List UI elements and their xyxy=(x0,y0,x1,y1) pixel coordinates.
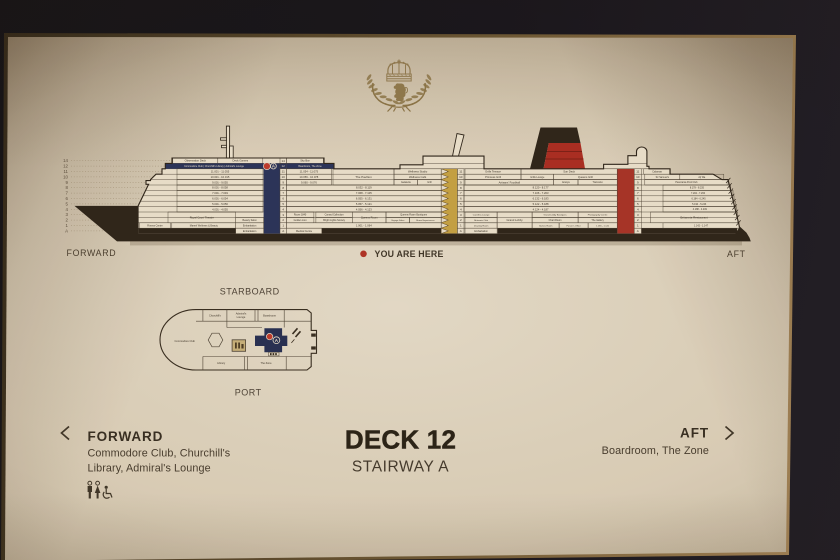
svg-text:Beauty Salon: Beauty Salon xyxy=(242,219,257,222)
svg-text:7.068 - 7.105: 7.068 - 7.105 xyxy=(356,191,372,195)
svg-text:11: 11 xyxy=(63,169,68,174)
svg-text:4.056 - 4.123: 4.056 - 4.123 xyxy=(356,207,372,211)
svg-text:3: 3 xyxy=(66,212,69,217)
svg-text:12: 12 xyxy=(63,164,68,169)
svg-text:A: A xyxy=(65,228,68,233)
svg-text:Sun Deck: Sun Deck xyxy=(563,170,575,174)
svg-text:Embarkation: Embarkation xyxy=(243,224,257,227)
svg-text:Wellness Café: Wellness Café xyxy=(409,175,427,179)
svg-text:6.184 - 6.245: 6.184 - 6.245 xyxy=(691,197,706,200)
svg-text:A: A xyxy=(282,229,284,233)
svg-text:5: 5 xyxy=(66,201,69,206)
svg-text:10: 10 xyxy=(282,175,286,179)
svg-text:11: 11 xyxy=(636,170,639,174)
svg-text:Aji Wa: Aji Wa xyxy=(698,176,705,179)
svg-text:10: 10 xyxy=(636,175,640,179)
svg-text:4.188 - 4.249: 4.188 - 4.249 xyxy=(693,208,708,211)
svg-text:Sir Samuel's: Sir Samuel's xyxy=(656,176,670,179)
svg-text:Princess Grill: Princess Grill xyxy=(485,175,501,179)
svg-text:7.106 - 7.203: 7.106 - 7.203 xyxy=(533,191,549,195)
svg-text:Boardroom, The Zone: Boardroom, The Zone xyxy=(298,165,322,168)
svg-text:7.202 - 7.260: 7.202 - 7.260 xyxy=(691,192,706,195)
svg-text:Grill: Grill xyxy=(427,181,432,184)
svg-text:4: 4 xyxy=(66,207,69,212)
svg-text:Room 1840: Room 1840 xyxy=(294,214,307,217)
svg-text:AFT: AFT xyxy=(727,249,746,259)
svg-text:Lounge: Lounge xyxy=(237,315,246,319)
svg-text:8.120 - 8.177: 8.120 - 8.177 xyxy=(533,186,549,190)
svg-text:12: 12 xyxy=(282,164,286,168)
svg-text:14: 14 xyxy=(63,158,68,163)
svg-text:5.122 - 5.188: 5.122 - 5.188 xyxy=(533,202,549,206)
svg-text:Fitness Centre: Fitness Centre xyxy=(147,224,163,227)
svg-text:Purser's Office: Purser's Office xyxy=(566,224,581,227)
svg-text:Boardroom, The Zone: Boardroom, The Zone xyxy=(602,445,709,457)
svg-text:4.124 - 4.187: 4.124 - 4.187 xyxy=(533,207,549,211)
svg-text:Gelateria: Gelateria xyxy=(401,181,411,184)
svg-text:Deck Games: Deck Games xyxy=(233,159,249,163)
svg-text:11: 11 xyxy=(459,170,462,174)
svg-text:8: 8 xyxy=(66,185,69,190)
svg-text:Shore Experiences: Shore Experiences xyxy=(416,219,435,222)
svg-text:5.190 - 5.243: 5.190 - 5.243 xyxy=(692,203,707,206)
svg-text:9.001 - 9.055: 9.001 - 9.055 xyxy=(212,180,228,184)
svg-text:8.032 - 8.119: 8.032 - 8.119 xyxy=(356,186,372,190)
svg-text:Grills Terrace: Grills Terrace xyxy=(485,170,501,174)
svg-text:Medical Centre: Medical Centre xyxy=(296,230,313,233)
svg-text:Sky Bar: Sky Bar xyxy=(300,159,310,163)
svg-text:7.001 - 7.049: 7.001 - 7.049 xyxy=(212,191,228,195)
svg-text:5.057 - 5.121: 5.057 - 5.121 xyxy=(356,202,372,206)
svg-text:A: A xyxy=(460,229,462,233)
svg-text:Commodore Club, Churchill's: Commodore Club, Churchill's xyxy=(88,448,231,460)
svg-text:10: 10 xyxy=(63,174,68,179)
svg-text:The Gallery: The Gallery xyxy=(591,219,604,222)
svg-text:Tramonto: Tramonto xyxy=(593,181,604,184)
svg-text:Bright Lights Society: Bright Lights Society xyxy=(323,219,346,222)
svg-text:YOU ARE HERE: YOU ARE HERE xyxy=(375,249,444,259)
svg-text:FORWARD: FORWARD xyxy=(88,429,164,444)
svg-text:PORT: PORT xyxy=(235,388,262,398)
svg-text:6.132 - 6.183: 6.132 - 6.183 xyxy=(533,197,549,201)
svg-text:8.001 - 8.058: 8.001 - 8.058 xyxy=(212,186,228,190)
svg-text:The Zone: The Zone xyxy=(260,361,272,365)
svg-text:Voyage Sales: Voyage Sales xyxy=(391,220,405,222)
svg-text:Observation Deck: Observation Deck xyxy=(185,159,207,163)
svg-text:STARBOARD: STARBOARD xyxy=(220,287,280,297)
svg-text:Grills Lounge: Grills Lounge xyxy=(530,176,545,179)
svg-text:DECK 12: DECK 12 xyxy=(345,425,456,455)
svg-text:10: 10 xyxy=(459,175,463,179)
svg-text:Embarkation: Embarkation xyxy=(474,230,488,233)
svg-text:Queens Room: Queens Room xyxy=(361,215,378,219)
svg-text:Churchill's: Churchill's xyxy=(209,314,222,318)
svg-text:Commodore Club | Churchill's L: Commodore Club | Churchill's Library | A… xyxy=(184,165,244,168)
svg-text:11: 11 xyxy=(282,170,285,174)
svg-text:AFT: AFT xyxy=(680,426,709,441)
svg-text:Artisans' Foodhall: Artisans' Foodhall xyxy=(499,180,521,184)
svg-text:7: 7 xyxy=(66,191,69,196)
svg-text:1.142 - 1.147: 1.142 - 1.147 xyxy=(694,224,709,227)
svg-text:9: 9 xyxy=(66,180,69,185)
svg-text:A: A xyxy=(637,229,639,233)
svg-text:Golden Lion: Golden Lion xyxy=(294,219,308,222)
svg-text:6: 6 xyxy=(66,196,69,201)
svg-text:Britannia Club: Britannia Club xyxy=(474,219,489,222)
svg-text:1: 1 xyxy=(66,223,69,228)
svg-text:1.001 - 1.064: 1.001 - 1.064 xyxy=(356,224,372,228)
svg-text:FORWARD: FORWARD xyxy=(67,248,117,258)
svg-text:Library: Library xyxy=(217,361,226,365)
svg-text:6.055 - 6.131: 6.055 - 6.131 xyxy=(356,197,372,201)
svg-text:Photography Centre: Photography Centre xyxy=(588,214,608,217)
svg-text:Mareel Wellness & Beauty: Mareel Wellness & Beauty xyxy=(190,224,219,227)
svg-text:Library, Admiral's Lounge: Library, Admiral's Lounge xyxy=(88,463,211,475)
svg-text:8.178 - 8.235: 8.178 - 8.235 xyxy=(690,187,705,190)
svg-text:10.056 - 10.078: 10.056 - 10.078 xyxy=(299,175,318,179)
svg-text:9.060 - 9.076: 9.060 - 9.076 xyxy=(301,180,317,184)
svg-text:Cunard Collection: Cunard Collection xyxy=(325,214,345,217)
svg-text:Britannia Restaurant: Britannia Restaurant xyxy=(680,216,708,220)
svg-text:11.054 - 11.075: 11.054 - 11.075 xyxy=(300,170,319,174)
svg-text:6.001 - 6.054: 6.001 - 6.054 xyxy=(212,197,228,201)
svg-text:Queens Grill: Queens Grill xyxy=(578,175,593,179)
svg-text:A: A xyxy=(272,164,275,169)
svg-text:Commodore Club: Commodore Club xyxy=(175,339,196,343)
svg-text:4.001 - 4.055: 4.001 - 4.055 xyxy=(212,207,228,211)
svg-text:Carinthia Lounge: Carinthia Lounge xyxy=(473,214,490,217)
svg-text:Boardroom: Boardroom xyxy=(263,314,276,318)
svg-text:Embarkation: Embarkation xyxy=(243,230,257,233)
svg-text:14: 14 xyxy=(282,159,286,163)
svg-text:Panorama Pool Club: Panorama Pool Club xyxy=(675,181,698,184)
svg-text:STAIRWAY A: STAIRWAY A xyxy=(352,459,449,476)
svg-text:1.065 - 1.141: 1.065 - 1.141 xyxy=(596,225,610,227)
svg-text:Grand Lobby Boutiques: Grand Lobby Boutiques xyxy=(544,214,568,217)
svg-text:Admiral's: Admiral's xyxy=(236,312,247,316)
svg-text:Aranya: Aranya xyxy=(562,181,570,184)
svg-text:Cabanas: Cabanas xyxy=(652,170,662,173)
svg-text:Games Room: Games Room xyxy=(539,225,553,227)
svg-text:Chart Room: Chart Room xyxy=(549,219,562,222)
svg-text:11.001 - 11.055: 11.001 - 11.055 xyxy=(211,170,230,174)
svg-text:Grand Lobby: Grand Lobby xyxy=(507,218,524,222)
svg-text:2: 2 xyxy=(66,218,69,223)
svg-text:Queens Room Boutiques: Queens Room Boutiques xyxy=(400,214,428,217)
svg-text:Royal Court Theatre: Royal Court Theatre xyxy=(190,215,215,219)
svg-text:10.001 - 10.015: 10.001 - 10.015 xyxy=(211,175,230,179)
svg-text:Drawing Room: Drawing Room xyxy=(474,224,489,227)
svg-text:5.001 - 5.056: 5.001 - 5.056 xyxy=(212,202,228,206)
svg-text:The Pavilion: The Pavilion xyxy=(355,175,372,179)
svg-text:Wellness Studio: Wellness Studio xyxy=(408,170,428,174)
